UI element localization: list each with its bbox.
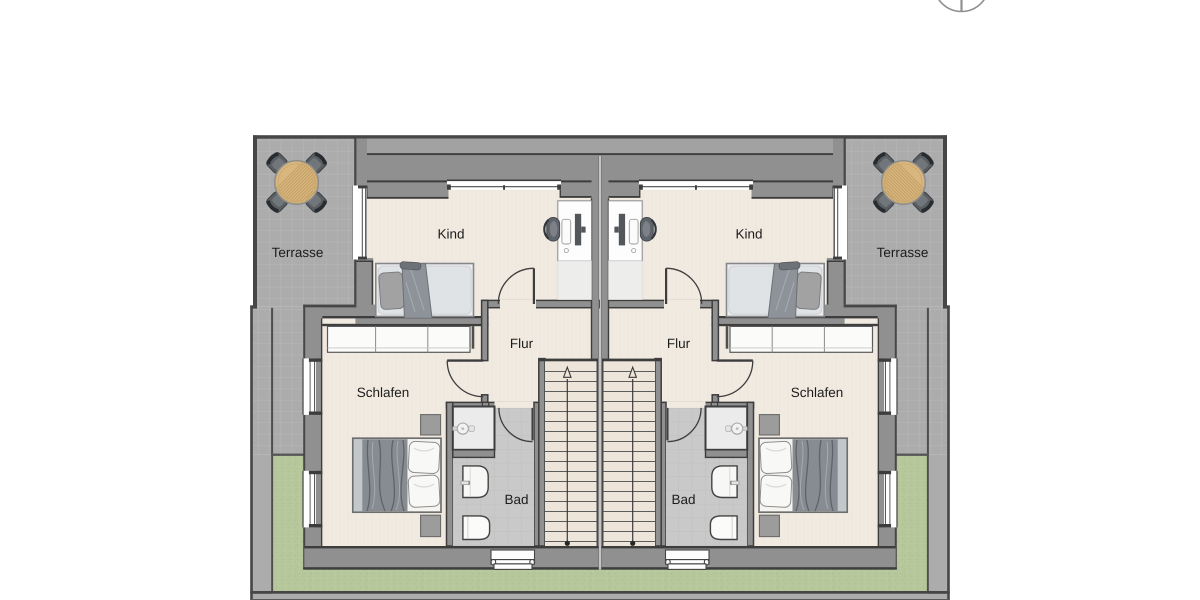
svg-text:Flur: Flur: [510, 336, 534, 351]
svg-text:Bad: Bad: [504, 492, 528, 507]
svg-text:Terrasse: Terrasse: [877, 245, 929, 260]
svg-text:Schlafen: Schlafen: [791, 385, 844, 400]
svg-text:Bad: Bad: [671, 492, 695, 507]
svg-text:Schlafen: Schlafen: [357, 385, 410, 400]
svg-text:Kind: Kind: [437, 226, 464, 241]
svg-text:Flur: Flur: [667, 336, 691, 351]
svg-text:Terrasse: Terrasse: [272, 245, 324, 260]
svg-text:Kind: Kind: [735, 226, 762, 241]
